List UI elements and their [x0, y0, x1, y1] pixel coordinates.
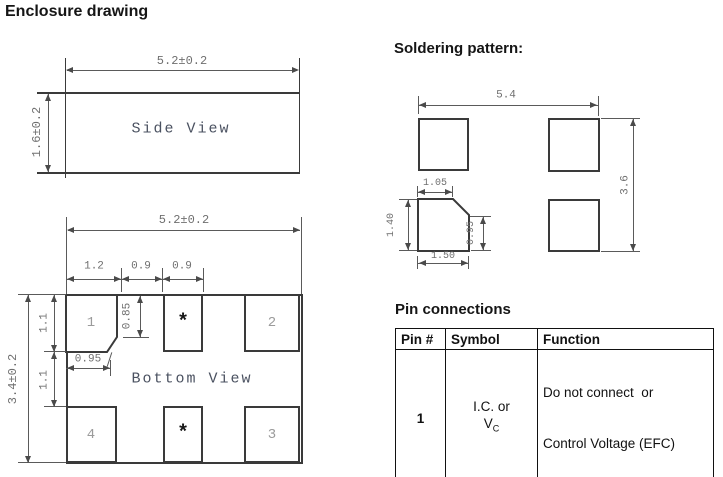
table-header-row: Pin # Symbol Function [396, 329, 714, 350]
pad-height-dim: 0.85 [123, 303, 134, 329]
arrow-left-icon [419, 102, 426, 108]
symbol-base: V [484, 416, 493, 431]
solder-pad-left-dim: 1.40 [387, 213, 397, 237]
pad-4-label: 4 [87, 428, 95, 442]
arrow-up-icon [45, 94, 51, 101]
arrow-left-icon [122, 276, 129, 282]
row2-dim: 1.1 [40, 370, 51, 390]
pin-connections-table: Pin # Symbol Function 1 I.C. or VC Do no… [395, 328, 714, 477]
arrow-up-icon [51, 295, 57, 302]
arrow-right-icon [445, 189, 452, 195]
arrow-left-icon [419, 260, 426, 266]
pad-2-label: 2 [268, 316, 276, 330]
col-header-symbol: Symbol [446, 329, 538, 350]
arrow-up-icon [405, 200, 411, 207]
dim-extension [598, 96, 599, 116]
arrow-left-icon [66, 67, 73, 73]
dim-line [68, 230, 300, 231]
seg-dim-2: 0.9 [131, 262, 151, 273]
arrow-left-icon [67, 365, 74, 371]
dim-extension [399, 250, 417, 251]
arrow-left-icon [418, 189, 425, 195]
dim-extension [301, 217, 302, 294]
arrow-down-icon [630, 244, 636, 251]
arrow-up-icon [25, 295, 31, 302]
side-view-left-edge [65, 58, 66, 178]
arrow-down-icon [25, 456, 31, 463]
side-view-label: Side View [131, 122, 230, 137]
arrow-right-icon [155, 276, 162, 282]
pad-1-label: 1 [87, 316, 95, 330]
arrow-left-icon [67, 227, 74, 233]
solder-pad-top-dim: 1.05 [423, 179, 447, 189]
bottom-view-label: Bottom View [131, 372, 252, 387]
row1-dim: 1.1 [40, 313, 51, 333]
solder-pad-bottom-dim: 1.50 [431, 252, 455, 262]
soldering-pattern-heading: Soldering pattern: [394, 40, 523, 57]
solder-pad-bottom-right [548, 199, 600, 252]
solder-pad-right-dim: 0.95 [467, 221, 477, 245]
col-header-pin: Pin # [396, 329, 446, 350]
arrow-down-icon [51, 345, 57, 352]
arrow-up-icon [480, 217, 486, 224]
arrow-left-icon [67, 276, 74, 282]
side-view-bottom-edge [37, 172, 300, 174]
arrow-right-icon [293, 227, 300, 233]
arrow-right-icon [196, 276, 203, 282]
col-header-function: Function [538, 329, 714, 350]
arrow-right-icon [292, 67, 299, 73]
function-line2: Control Voltage (EFC) [543, 435, 708, 452]
dim-line [67, 70, 297, 71]
solder-pad-bottom-left-chamfered [417, 198, 471, 253]
pad-nc-bottom-asterisk: * [179, 422, 187, 442]
solder-pad-top-left [418, 118, 469, 171]
pin-function: Do not connect or Control Voltage (EFC) [538, 350, 714, 477]
pin-symbol: I.C. or VC [446, 350, 538, 477]
solder-width-dim: 5.4 [496, 91, 516, 102]
dim-extension [123, 337, 149, 338]
datasheet-page: Enclosure drawing Side View 5.2±0.2 1.6±… [0, 0, 723, 477]
pad-nc-top-asterisk: * [179, 311, 187, 331]
arrow-down-icon [137, 330, 143, 337]
arrow-right-icon [103, 365, 110, 371]
arrow-up-icon [137, 296, 143, 303]
arrow-down-icon [405, 243, 411, 250]
symbol-line2: VC [451, 415, 532, 438]
side-view-right-edge [299, 58, 300, 174]
solder-pad-top-right [548, 118, 600, 172]
bottom-view-height-dim: 3.4±0.2 [7, 354, 19, 404]
seg-dim-1: 1.2 [84, 262, 104, 273]
dim-extension [601, 251, 640, 252]
arrow-down-icon [480, 243, 486, 250]
dim-line [419, 105, 598, 106]
dim-tick [110, 360, 111, 376]
arrow-down-icon [51, 400, 57, 407]
arrow-left-icon [163, 276, 170, 282]
side-view-top-edge [37, 92, 300, 94]
dim-extension [471, 250, 491, 251]
dim-line [633, 119, 634, 251]
solder-height-dim: 3.6 [621, 175, 632, 195]
table-row: 1 I.C. or VC Do not connect or Control V… [396, 350, 714, 477]
pad1-bottom-dim: 0.95 [75, 355, 101, 366]
page-title: Enclosure drawing [5, 3, 148, 21]
arrow-down-icon [45, 165, 51, 172]
pin-number: 1 [396, 350, 446, 477]
pad-3-label: 3 [268, 428, 276, 442]
symbol-line1: I.C. or [451, 398, 532, 415]
dim-line [66, 279, 203, 280]
arrow-up-icon [630, 119, 636, 126]
arrow-right-icon [461, 260, 468, 266]
side-view-width-dim: 5.2±0.2 [157, 55, 207, 67]
side-view-height-dim: 1.6±0.2 [31, 107, 43, 157]
arrow-up-icon [51, 352, 57, 359]
arrow-right-icon [590, 102, 597, 108]
arrow-right-icon [114, 276, 121, 282]
symbol-subscript: C [493, 424, 500, 434]
dim-line [28, 295, 29, 463]
pin-connections-heading: Pin connections [395, 301, 511, 318]
function-line1: Do not connect or [543, 384, 708, 401]
seg-dim-3: 0.9 [172, 262, 192, 273]
dim-tick [203, 268, 204, 292]
dim-line [48, 94, 49, 172]
bottom-view-width-dim: 5.2±0.2 [159, 214, 209, 226]
